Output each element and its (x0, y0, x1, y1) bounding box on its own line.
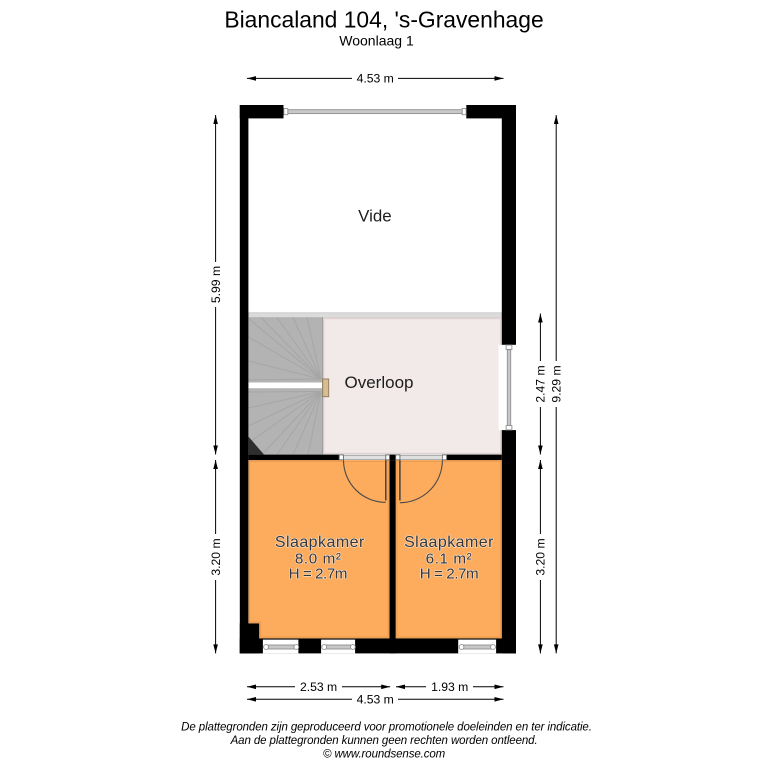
svg-text:Woonlaag 1: Woonlaag 1 (339, 32, 414, 48)
svg-text:Overloop: Overloop (345, 373, 414, 392)
svg-text:© www.roundsense.com: © www.roundsense.com (323, 748, 446, 760)
svg-text:2.53 m: 2.53 m (300, 680, 337, 694)
svg-text:9.29 m: 9.29 m (549, 365, 563, 402)
svg-text:4.53 m: 4.53 m (357, 693, 394, 707)
svg-text:Vide: Vide (358, 207, 392, 226)
svg-text:5.99 m: 5.99 m (209, 266, 223, 303)
svg-text:Aan de plattegronden kunnen ge: Aan de plattegronden kunnen geen rechten… (230, 735, 538, 747)
svg-text:3.20 m: 3.20 m (534, 538, 548, 575)
svg-text:Slaapkamer: Slaapkamer (275, 534, 365, 551)
svg-text:4.53 m: 4.53 m (357, 72, 394, 86)
svg-text:3.20 m: 3.20 m (209, 538, 223, 575)
svg-text:2.47 m: 2.47 m (534, 365, 548, 402)
svg-text:De plattegronden zijn geproduc: De plattegronden zijn geproduceerd voor … (181, 721, 592, 733)
svg-text:1.93 m: 1.93 m (431, 680, 468, 694)
svg-text:H = 2.7m: H = 2.7m (420, 566, 478, 583)
svg-text:Biancaland 104, 's-Gravenhage: Biancaland 104, 's-Gravenhage (224, 6, 543, 32)
svg-text:H = 2.7m: H = 2.7m (289, 566, 347, 583)
svg-text:Slaapkamer: Slaapkamer (404, 534, 494, 551)
